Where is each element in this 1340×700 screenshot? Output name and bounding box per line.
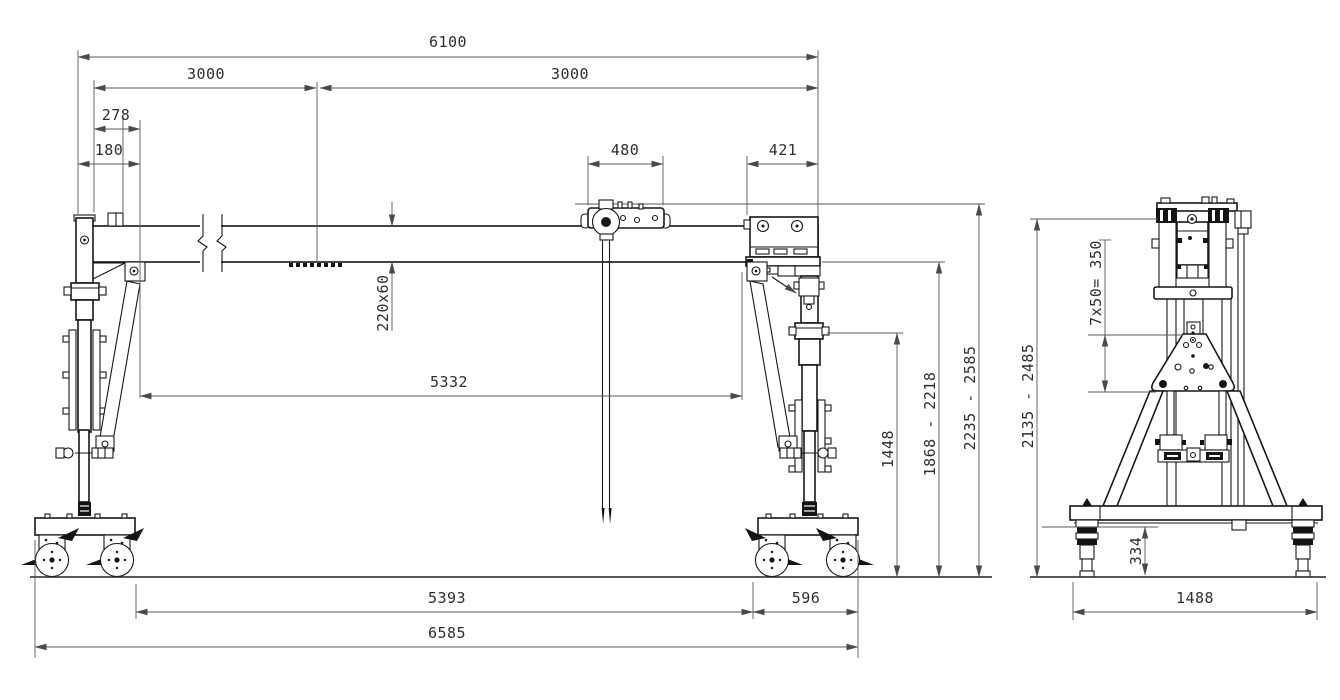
side-view: 2135 - 2485 7x50= 350 334 1488 [1019,197,1326,620]
dim-track-width: 1488 [1073,582,1317,620]
front-view: 6100 3000 3000 278 180 480 [21,33,992,658]
side-hoist [1155,391,1232,462]
leg-hinge [802,502,817,516]
gusset [93,263,125,279]
leg-clamp [71,283,99,300]
trolley-wheel-block [1208,208,1229,223]
base-beam [758,518,858,535]
dim-label: 6585 [428,624,466,642]
girder-teeth [289,263,342,267]
dim-label: 6100 [429,33,467,51]
right-base [745,514,874,577]
dim-girder-section: 220x60 [374,202,392,332]
dim-trolley-width: 480 [588,141,663,205]
dim-label: 2235 - 2585 [961,346,979,451]
trolley-wheel-block [1156,208,1177,223]
dim-overall-base-length: 6585 [35,624,858,647]
dim-end-offset-b: 180 [78,141,140,164]
dim-label: 1868 - 2218 [921,372,939,477]
dim-bogie-width: 596 [753,589,858,612]
dim-overall-length: 6100 [78,33,818,216]
jack-handle-eye [818,448,828,458]
dim-label: 596 [792,589,821,607]
dim-label: 5393 [428,589,466,607]
dim-label: 421 [769,141,798,159]
leg-side-plate [818,400,825,472]
dim-label: 5332 [430,373,468,391]
left-base [21,514,144,577]
girder-beam [92,82,818,272]
pointer-line [772,277,796,293]
dim-overall-height-range: 2235 - 2585 [961,204,979,577]
leg-side-plate [93,330,100,430]
caster [816,528,874,577]
drawing-sheet: 6100 3000 3000 278 180 480 [0,0,1340,700]
base-beam [1070,506,1322,520]
dim-label: 1448 [879,430,897,468]
girder-end-plate [1235,211,1251,228]
dim-label: 1488 [1176,589,1214,607]
dim-label: 220x60 [374,274,392,331]
side-top-assembly [1152,197,1251,299]
hoist-chain [602,240,612,524]
dim-label: 180 [95,141,124,159]
girder-end-section [1177,222,1208,265]
dim-rail-half-left: 3000 [94,65,316,212]
jack-block [780,448,801,458]
base-beam [35,518,135,535]
dim-label: 480 [611,141,640,159]
dim-label: 7x50= 350 [1087,240,1105,326]
caster [21,528,79,577]
leg-clamp [795,323,823,339]
jack-block [92,448,113,458]
side-base [1070,498,1322,577]
dim-rail-half-right: 3000 [320,65,818,88]
dim-label: 2135 - 2485 [1019,344,1037,449]
dim-label: 334 [1127,537,1145,566]
dim-label: 3000 [187,65,225,83]
lock-cylinder [799,278,819,296]
leveling-caster [1076,520,1098,577]
dim-label: 278 [102,106,131,124]
dim-label: 3000 [551,65,589,83]
dim-caster-height: 334 [1042,527,1158,575]
dim-inner-span: 5332 [140,272,742,400]
leveling-caster [1292,520,1314,577]
leg-side-plate [69,330,76,430]
leg-hinge [78,502,91,516]
